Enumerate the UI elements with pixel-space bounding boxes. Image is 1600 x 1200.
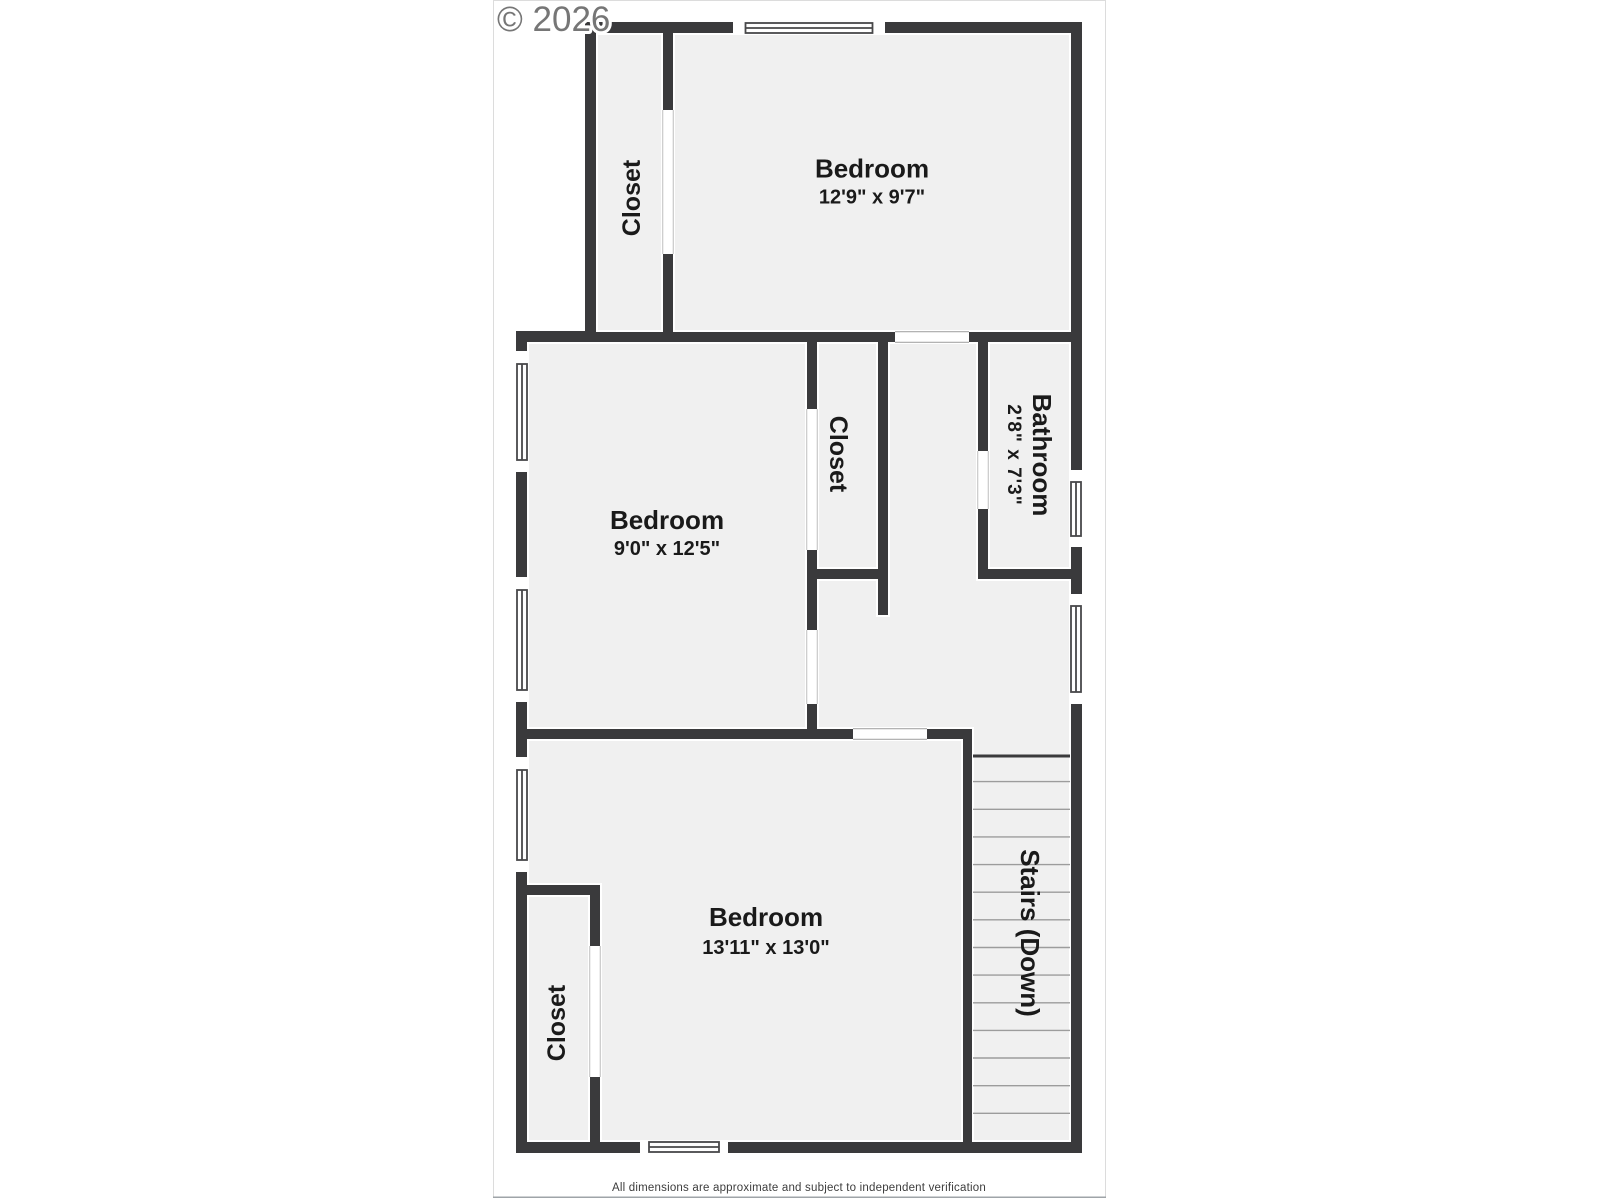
svg-text:Bathroom: Bathroom <box>1027 394 1057 517</box>
svg-text:© 2026: © 2026 <box>497 0 610 39</box>
svg-text:9'0" x 12'5": 9'0" x 12'5" <box>614 538 720 560</box>
svg-text:Closet: Closet <box>543 984 571 1061</box>
svg-text:2'8" x 7'3": 2'8" x 7'3" <box>1003 404 1024 505</box>
svg-text:Closet: Closet <box>824 416 852 493</box>
svg-text:Stairs (Down): Stairs (Down) <box>1015 849 1045 1017</box>
svg-text:12'9" x 9'7": 12'9" x 9'7" <box>819 187 925 209</box>
svg-text:Bedroom: Bedroom <box>815 154 929 184</box>
svg-text:Bedroom: Bedroom <box>709 902 823 932</box>
svg-text:Bedroom: Bedroom <box>610 505 724 535</box>
svg-text:Closet: Closet <box>618 159 646 236</box>
svg-text:13'11" x 13'0": 13'11" x 13'0" <box>702 937 829 959</box>
svg-text:All dimensions are approximate: All dimensions are approximate and subje… <box>612 1182 986 1194</box>
